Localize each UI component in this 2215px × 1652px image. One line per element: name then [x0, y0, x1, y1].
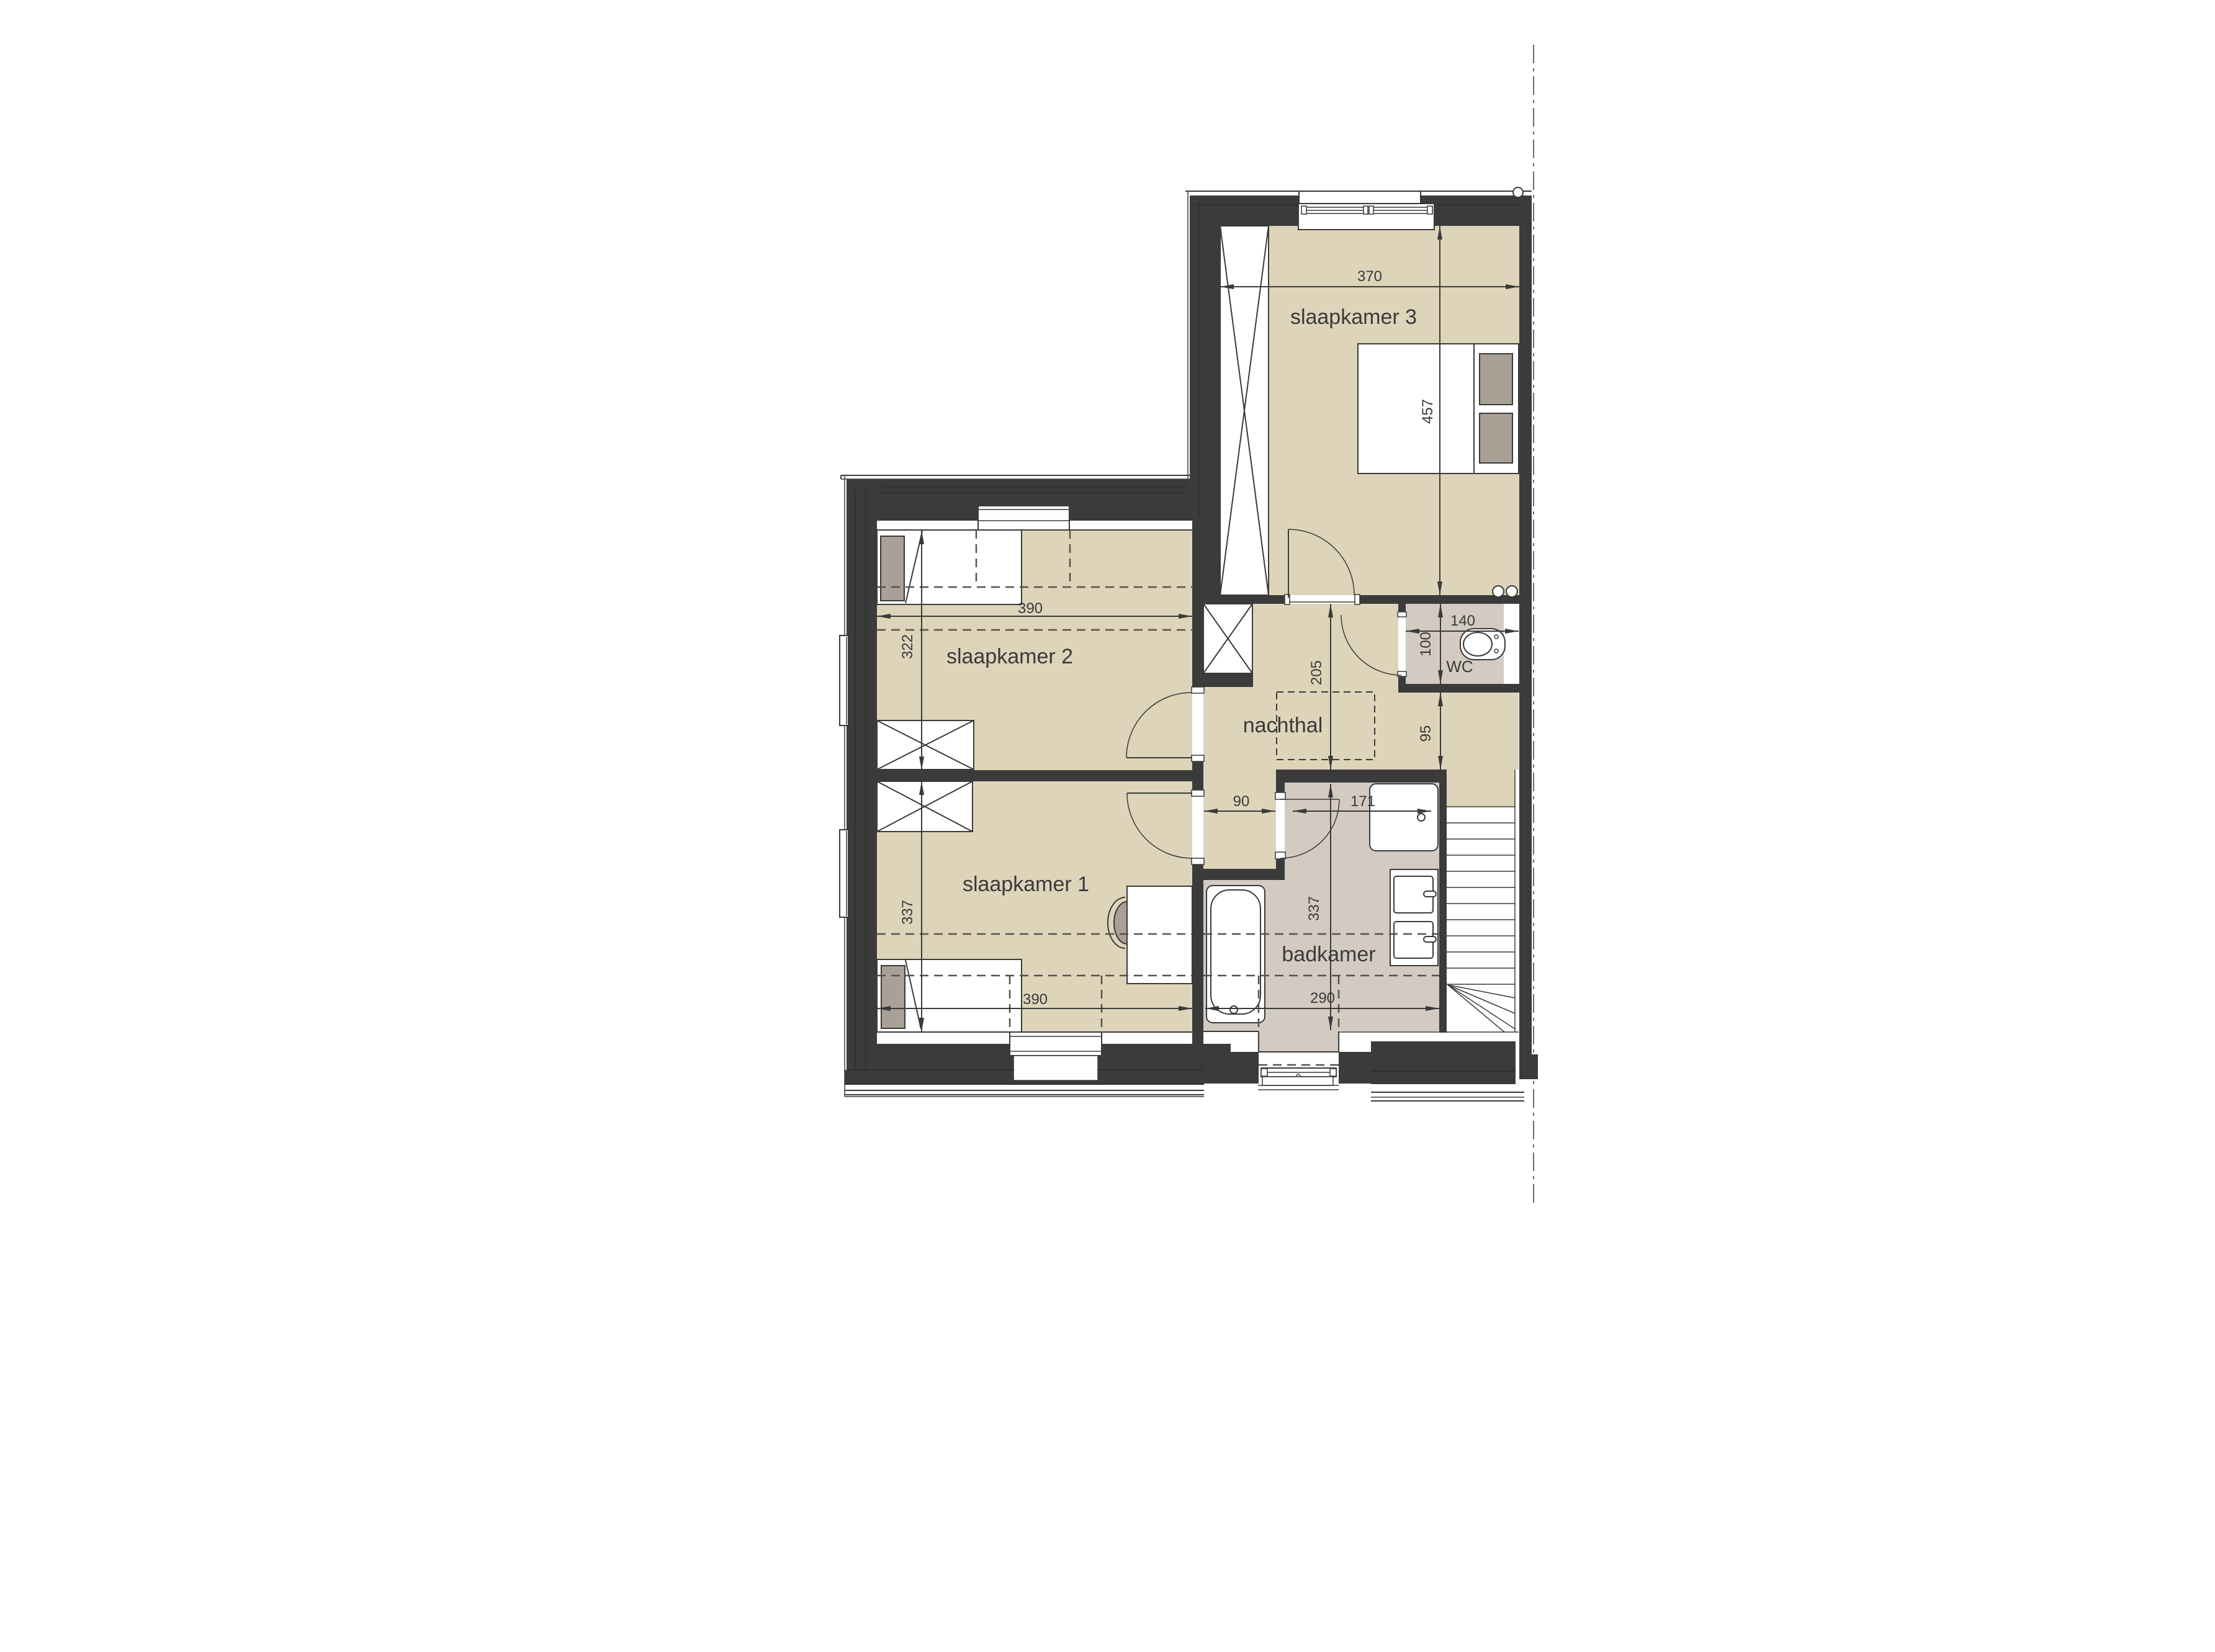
svg-text:100: 100 [1418, 632, 1434, 657]
svg-text:nachthal: nachthal [1243, 714, 1323, 737]
svg-text:WC: WC [1446, 657, 1473, 676]
svg-text:457: 457 [1419, 399, 1436, 424]
svg-text:171: 171 [1350, 793, 1375, 810]
svg-text:337: 337 [1306, 896, 1323, 921]
svg-text:337: 337 [899, 900, 916, 925]
svg-text:slaapkamer 1: slaapkamer 1 [963, 873, 1089, 896]
svg-text:205: 205 [1308, 660, 1325, 685]
svg-text:390: 390 [1018, 600, 1043, 617]
svg-text:95: 95 [1418, 725, 1434, 742]
svg-text:badkamer: badkamer [1282, 943, 1375, 966]
svg-text:slaapkamer 3: slaapkamer 3 [1290, 305, 1417, 329]
svg-text:140: 140 [1450, 613, 1475, 629]
svg-text:slaapkamer 2: slaapkamer 2 [946, 645, 1073, 668]
svg-text:390: 390 [1023, 991, 1048, 1008]
svg-text:290: 290 [1310, 990, 1335, 1007]
svg-text:90: 90 [1233, 793, 1250, 810]
svg-text:370: 370 [1357, 268, 1382, 285]
svg-text:322: 322 [899, 634, 916, 659]
